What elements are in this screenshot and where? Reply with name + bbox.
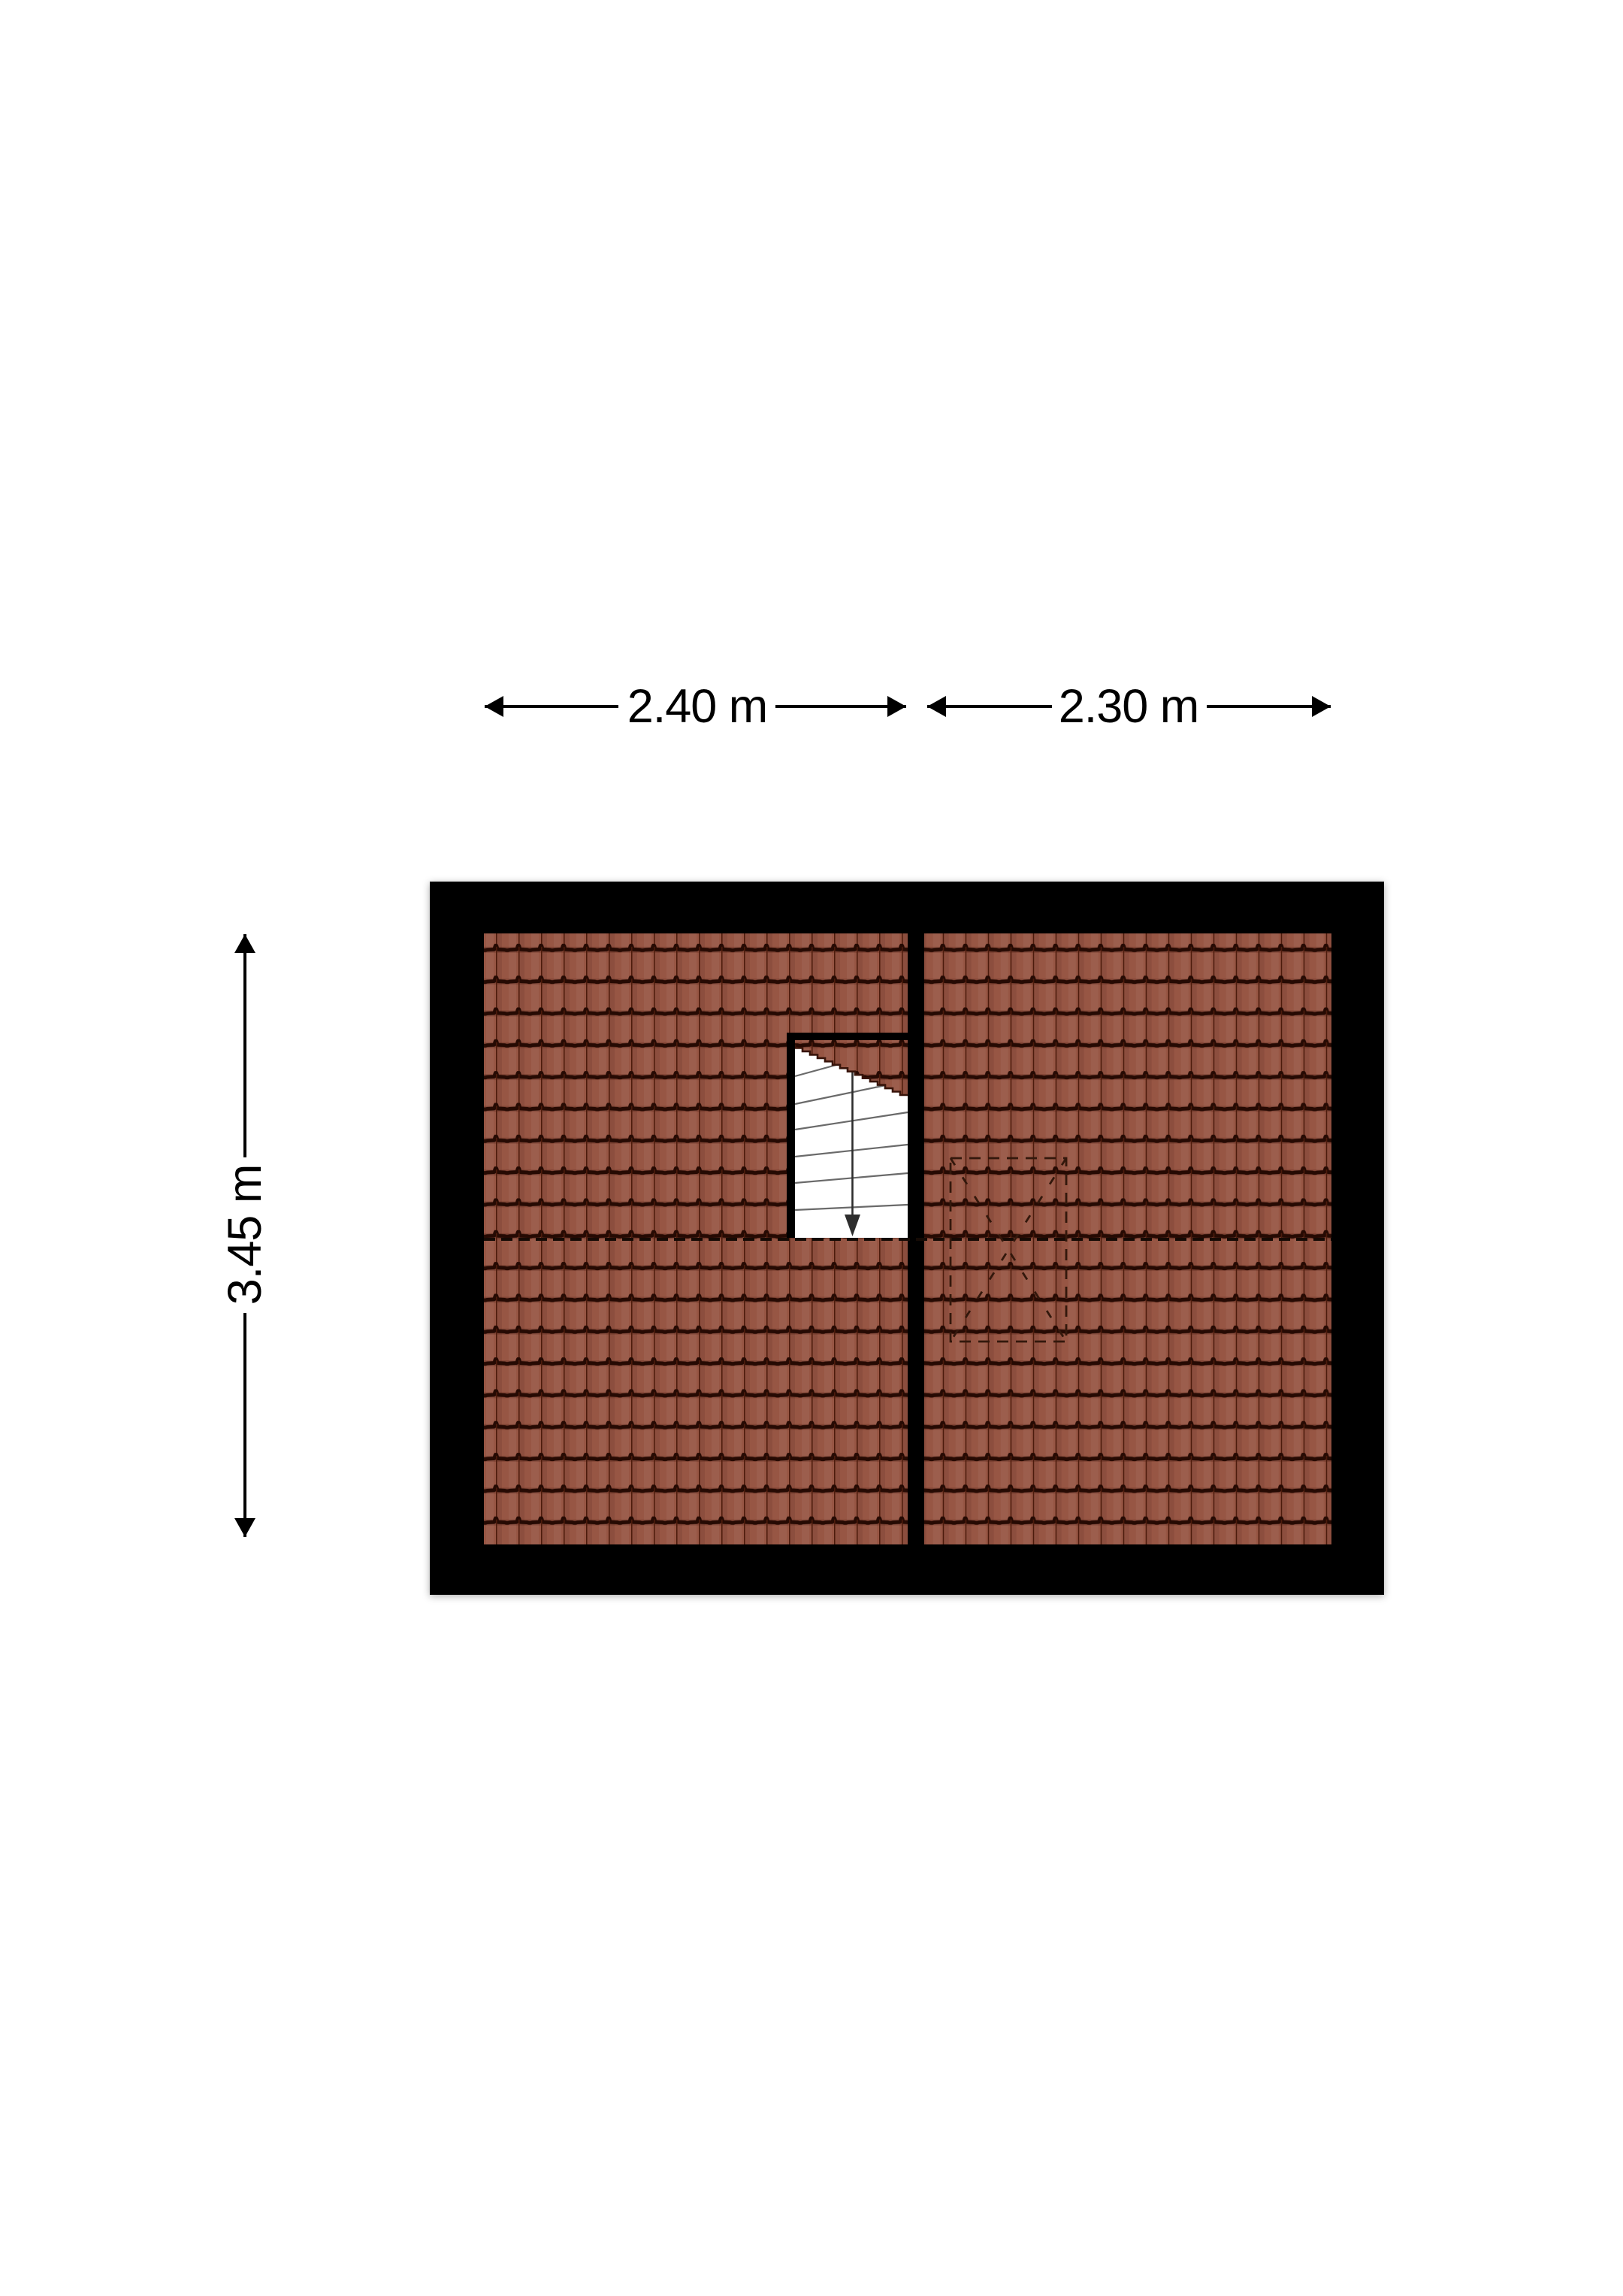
svg-text:2.30 m: 2.30 m bbox=[1059, 680, 1199, 733]
svg-text:2.40 m: 2.40 m bbox=[627, 680, 768, 733]
svg-text:3.45 m: 3.45 m bbox=[219, 1165, 271, 1305]
